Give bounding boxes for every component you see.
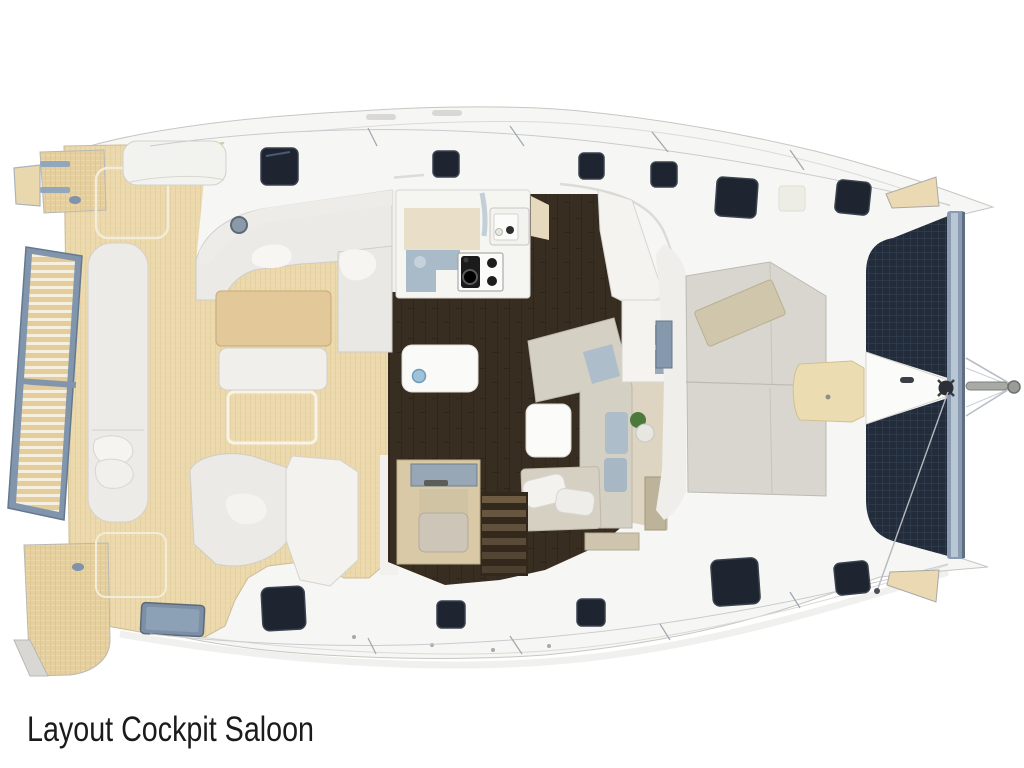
svg-text:Layout Cockpit Saloon: Layout Cockpit Saloon (27, 710, 314, 749)
